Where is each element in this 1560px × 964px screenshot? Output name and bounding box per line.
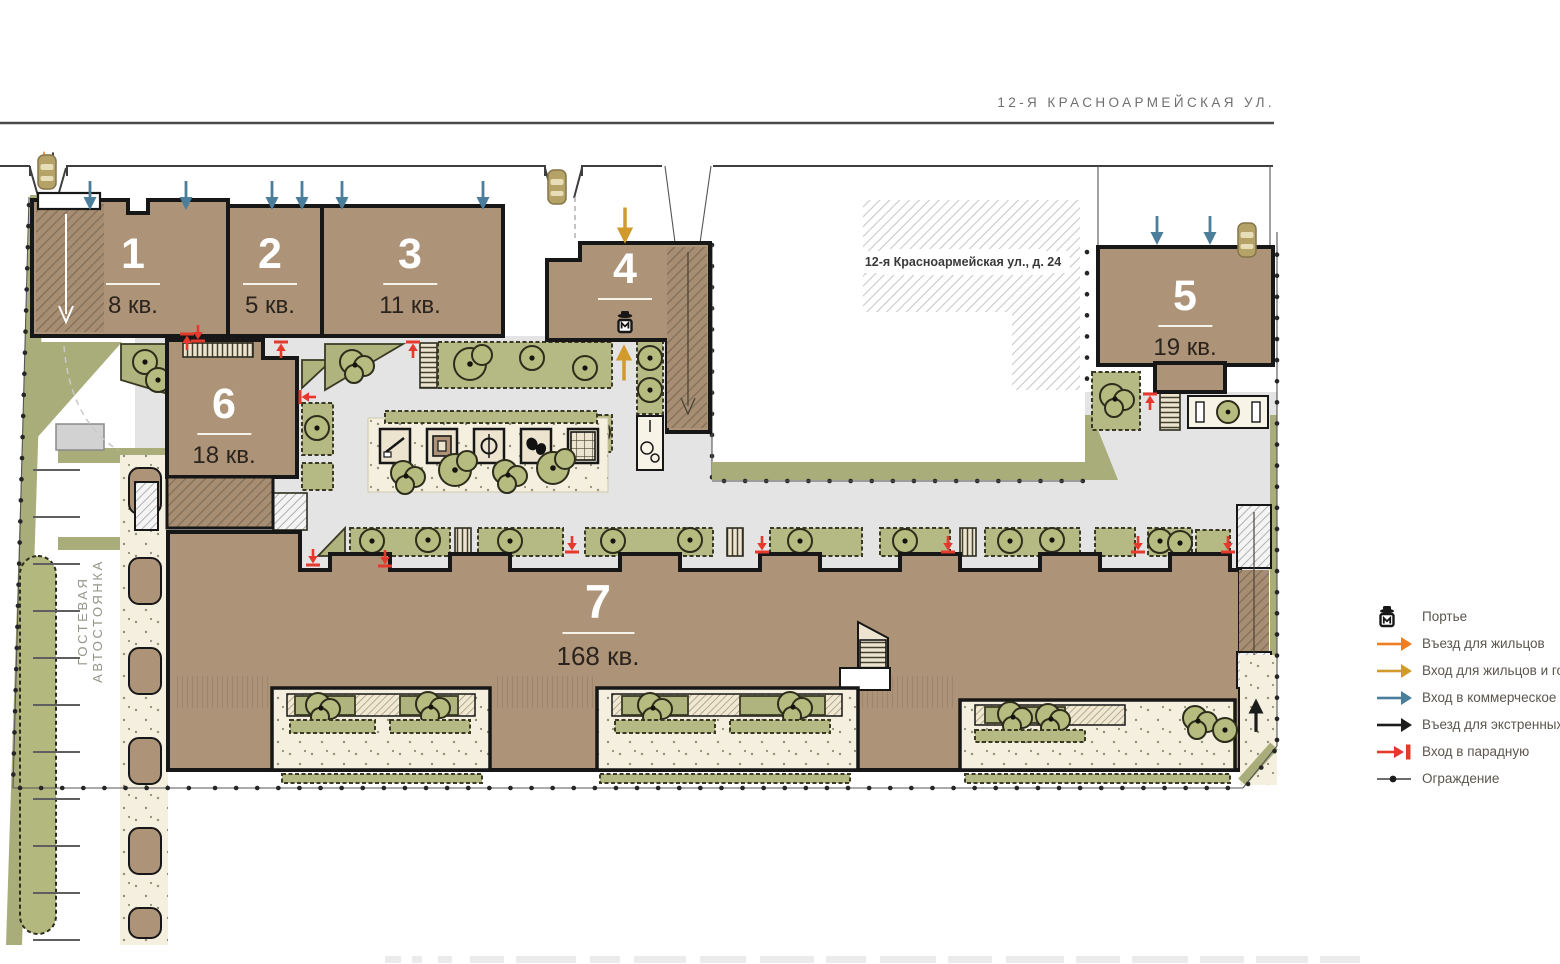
- legend: Портье Въезд для жильцов Вход для жильцо…: [1377, 603, 1560, 792]
- building-number: 5: [1153, 275, 1216, 318]
- label-divider: [598, 298, 652, 300]
- apartment-count: 18 кв.: [192, 442, 255, 470]
- building-number: 7: [556, 578, 639, 625]
- neighbor-building-label: 12-я Красноармейская ул., д. 24: [856, 251, 1070, 273]
- utility-box: [56, 424, 104, 450]
- apartment-count: 11 кв.: [379, 292, 441, 320]
- porch-entry-arrow-icon: [1377, 744, 1422, 760]
- commercial-entry-arrow-icon: [1377, 690, 1422, 706]
- apartment-count: 8 кв.: [106, 292, 160, 320]
- resident-guest-entry-arrow-icon: [1377, 663, 1422, 679]
- building-number: 3: [379, 233, 441, 276]
- concierge-icon: [1377, 605, 1422, 629]
- courtyard-niche: [960, 700, 1237, 770]
- building-5-label[interactable]: 5 19 кв.: [1153, 275, 1216, 362]
- playground: [368, 411, 608, 494]
- pergola-benches: [1188, 396, 1268, 428]
- building-1-label[interactable]: 1 8 кв.: [106, 233, 160, 320]
- emergency-drive-arrow-icon: [1377, 717, 1422, 733]
- legend-item-guest-entry: Вход для жильцов и госте: [1377, 657, 1560, 684]
- building-6-label[interactable]: 6 18 кв.: [192, 383, 255, 470]
- courtyard-niche: [597, 688, 858, 770]
- bottom-cut-marks: [0, 956, 1560, 964]
- legend-label: Портье: [1422, 609, 1467, 624]
- apartment-count: 5 кв.: [243, 292, 297, 320]
- apartment-count: 168 кв.: [556, 641, 639, 672]
- legend-item-emergency-drive: Въезд для экстренных слу: [1377, 711, 1560, 738]
- car-icon: [548, 170, 566, 204]
- car-icon: [38, 155, 56, 189]
- legend-item-concierge: Портье: [1377, 603, 1560, 630]
- building-number: 4: [598, 248, 652, 291]
- legend-label: Вход в парадную: [1422, 744, 1529, 759]
- apartment-count: 19 кв.: [1153, 334, 1216, 362]
- fence-icon: [1377, 771, 1422, 787]
- bench-table-unit: [637, 416, 663, 470]
- building-number: 1: [106, 233, 160, 276]
- guest-parking-label: ГОСТЕВАЯ АВТОСТОЯНКА: [75, 513, 105, 729]
- building-4-label[interactable]: 4: [598, 248, 652, 300]
- building-2-label[interactable]: 2 5 кв.: [243, 233, 297, 320]
- legend-label: Въезд для жильцов: [1422, 636, 1545, 651]
- car-icon: [1238, 223, 1256, 257]
- building-number: 2: [243, 233, 297, 276]
- legend-item-fence: Ограждение: [1377, 765, 1560, 792]
- street-name: 12-Я КРАСНОАРМЕЙСКАЯ УЛ.: [0, 95, 1275, 110]
- site-plan-canvas: 12-Я КРАСНОАРМЕЙСКАЯ УЛ. 12-я Красноарме…: [0, 0, 1560, 964]
- legend-label: Вход в коммерческое пом: [1422, 690, 1560, 705]
- legend-label: Вход для жильцов и госте: [1422, 663, 1560, 678]
- label-divider: [243, 283, 297, 285]
- site-plan-svg: [0, 0, 1560, 964]
- legend-item-commercial-entry: Вход в коммерческое пом: [1377, 684, 1560, 711]
- play-equipment-roundabout: [474, 429, 504, 463]
- legend-item-resident-drive: Въезд для жильцов: [1377, 630, 1560, 657]
- label-divider: [383, 283, 437, 285]
- building-7-label[interactable]: 7 168 кв.: [556, 578, 639, 672]
- play-equipment-seesaw: [380, 429, 410, 463]
- label-divider: [106, 283, 160, 285]
- label-divider: [197, 433, 251, 435]
- neighbor-building-24: [712, 200, 1118, 481]
- label-divider: [562, 632, 634, 634]
- legend-label: Въезд для экстренных слу: [1422, 717, 1560, 732]
- label-divider: [1158, 325, 1212, 327]
- legend-label: Ограждение: [1422, 771, 1499, 786]
- legend-item-porch-entry: Вход в парадную: [1377, 738, 1560, 765]
- building-number: 6: [192, 383, 255, 426]
- resident-drive-arrow-icon: [1377, 636, 1422, 652]
- courtyard-niche: [272, 688, 490, 770]
- building-3-label[interactable]: 3 11 кв.: [379, 233, 441, 320]
